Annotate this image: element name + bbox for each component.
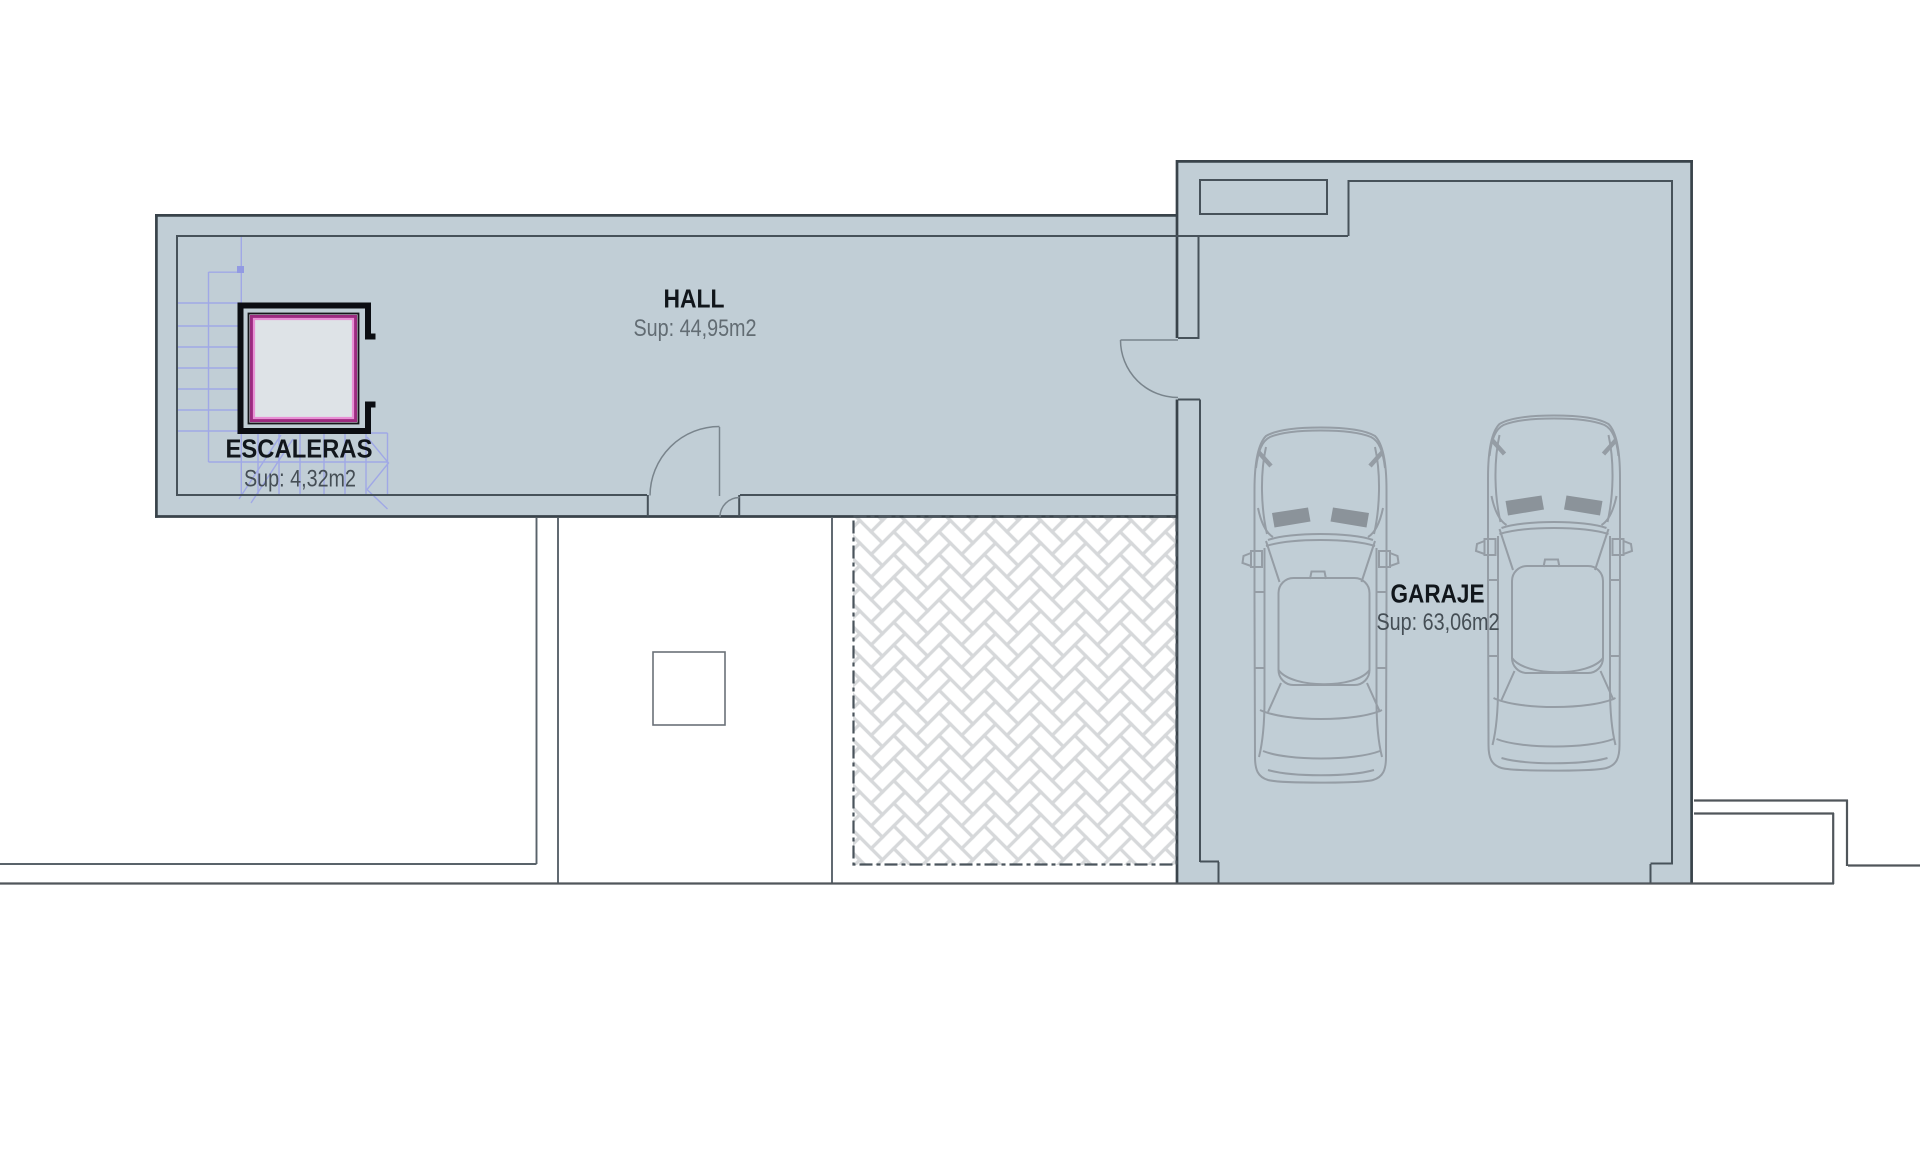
svg-text:GARAJE: GARAJE <box>1391 579 1485 609</box>
svg-text:Sup: 4,32m2: Sup: 4,32m2 <box>244 466 356 493</box>
svg-text:Sup: 63,06m2: Sup: 63,06m2 <box>1377 609 1500 636</box>
svg-text:ESCALERAS: ESCALERAS <box>226 434 373 464</box>
svg-text:HALL: HALL <box>664 284 725 314</box>
svg-text:Sup: 44,95m2: Sup: 44,95m2 <box>634 315 757 342</box>
